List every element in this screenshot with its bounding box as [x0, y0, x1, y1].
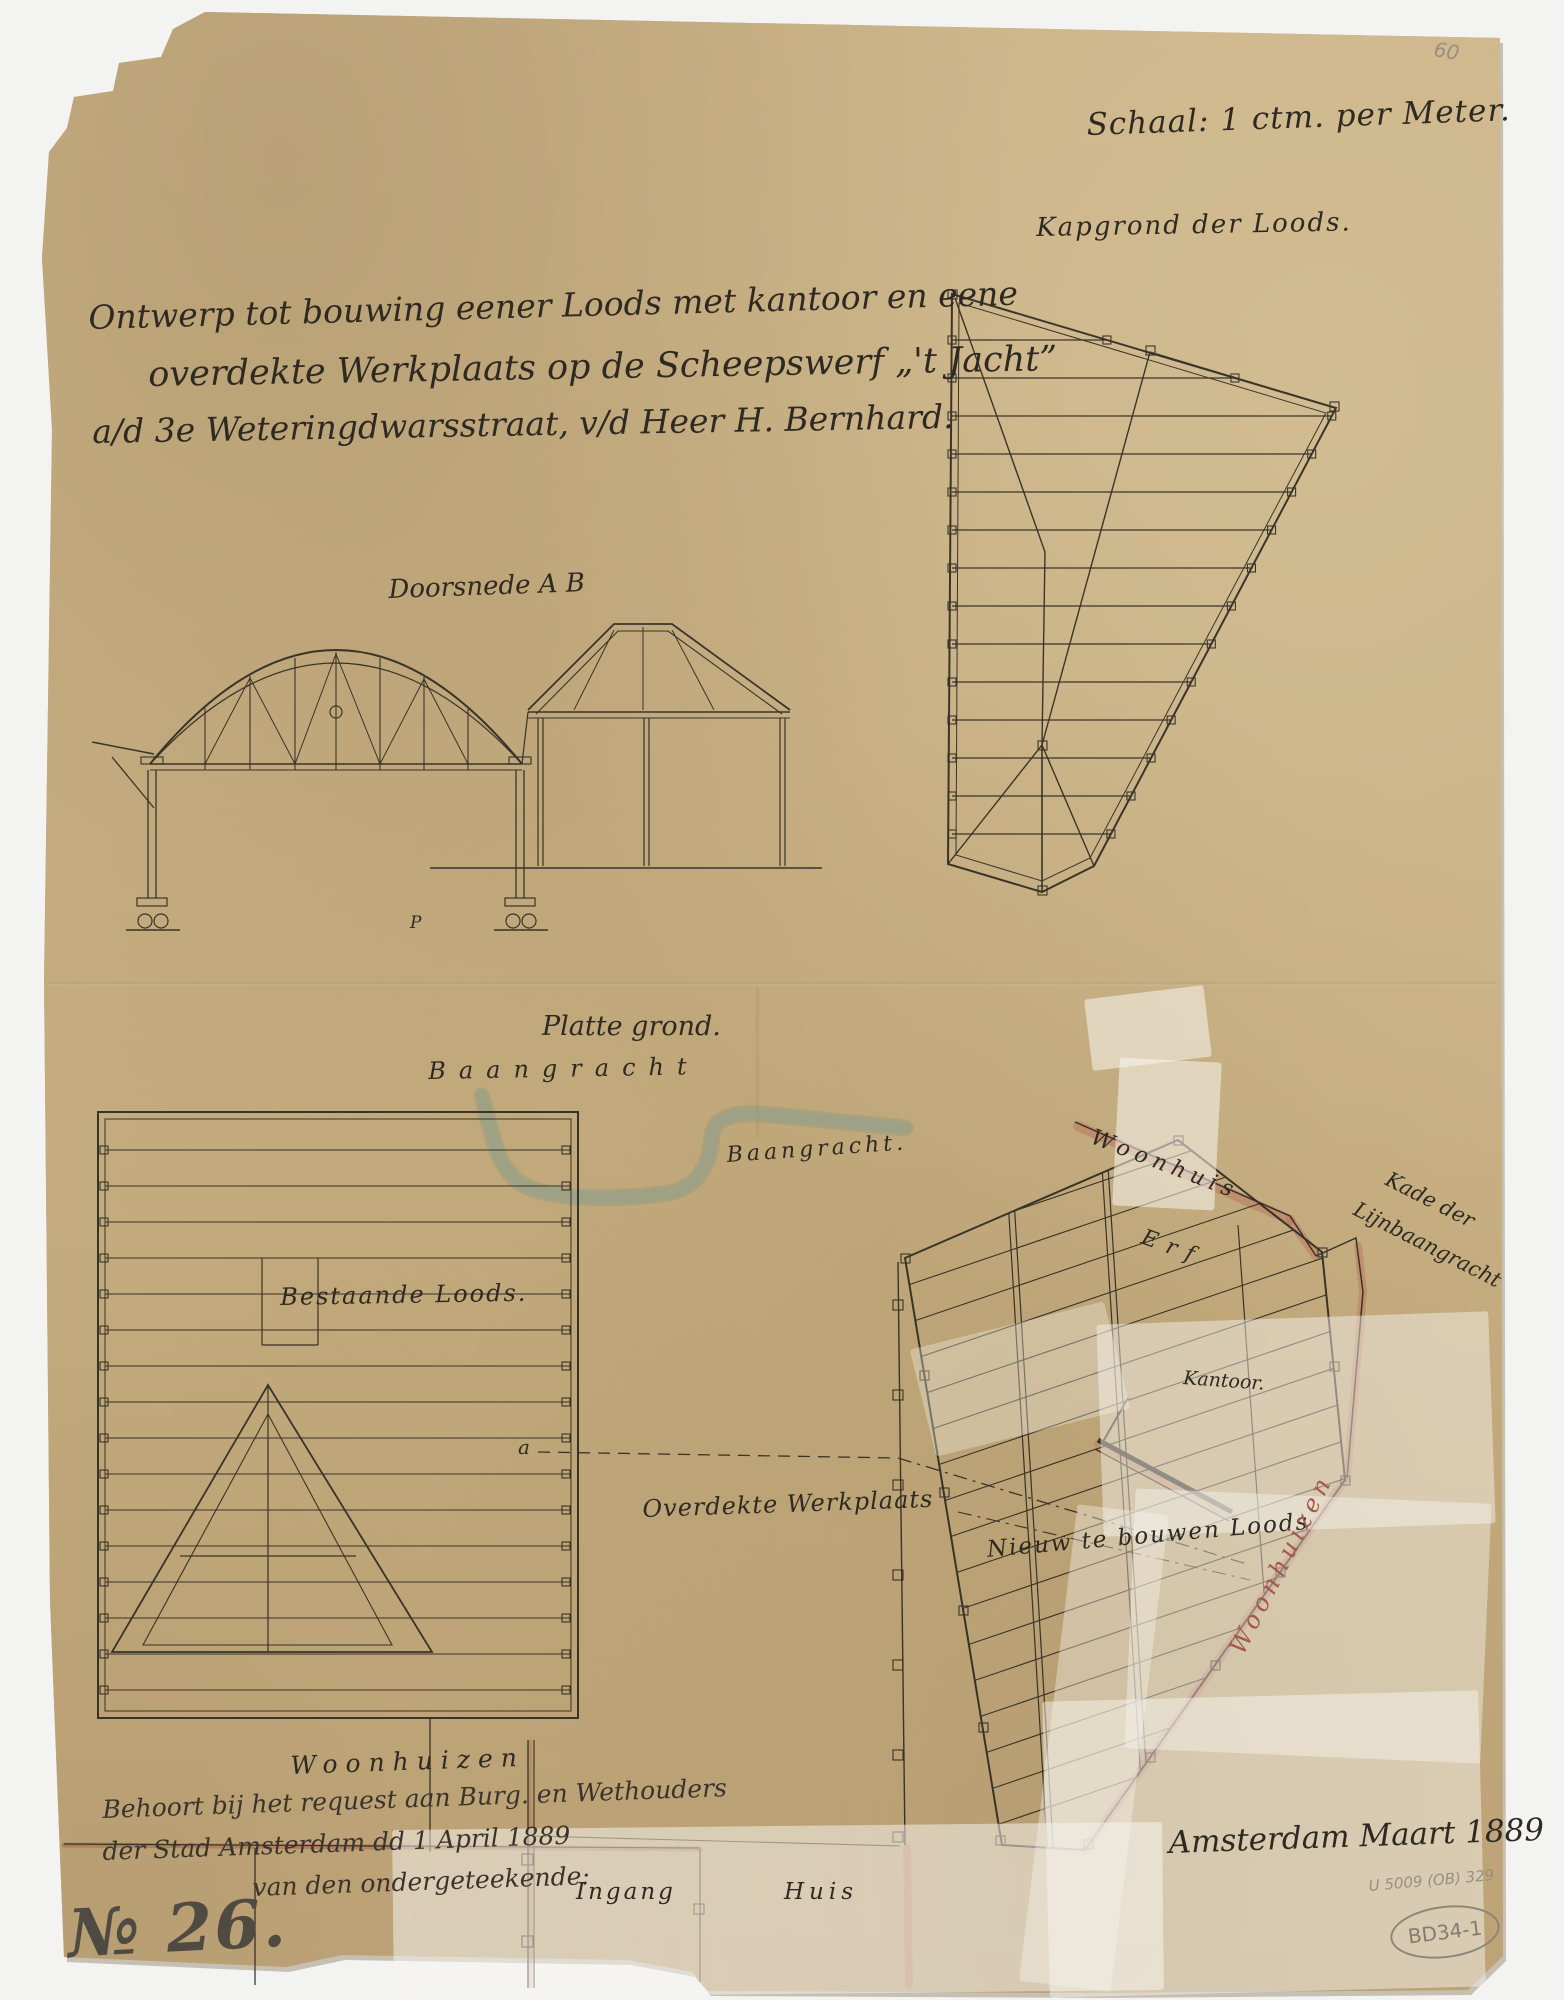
section-line-mark: a — [518, 1436, 530, 1458]
existing-shed-label: Bestaande Loods. — [280, 1280, 528, 1311]
sheet-number: № 26. — [66, 1887, 289, 1971]
entrance-label: Ingang — [576, 1880, 676, 1905]
roof-plan-drawing — [948, 290, 1339, 895]
corner-pencil-mark: 60 — [1432, 38, 1461, 64]
section-point-mark: P — [410, 914, 421, 933]
roof-plan-label: Kapgrond der Loods. — [1036, 208, 1352, 242]
archive-stamp-text: BD34-1 — [1407, 1916, 1484, 1949]
site-plan-label: Platte grond. — [542, 1012, 721, 1042]
house-small-label: Huis — [784, 1880, 858, 1905]
scanned-drawing-sheet: Schaal: 1 ctm. per Meter. 60 Ontwerp tot… — [0, 0, 1564, 2000]
street-label: Baangracht — [428, 1053, 700, 1084]
cross-section-drawing — [92, 624, 822, 930]
